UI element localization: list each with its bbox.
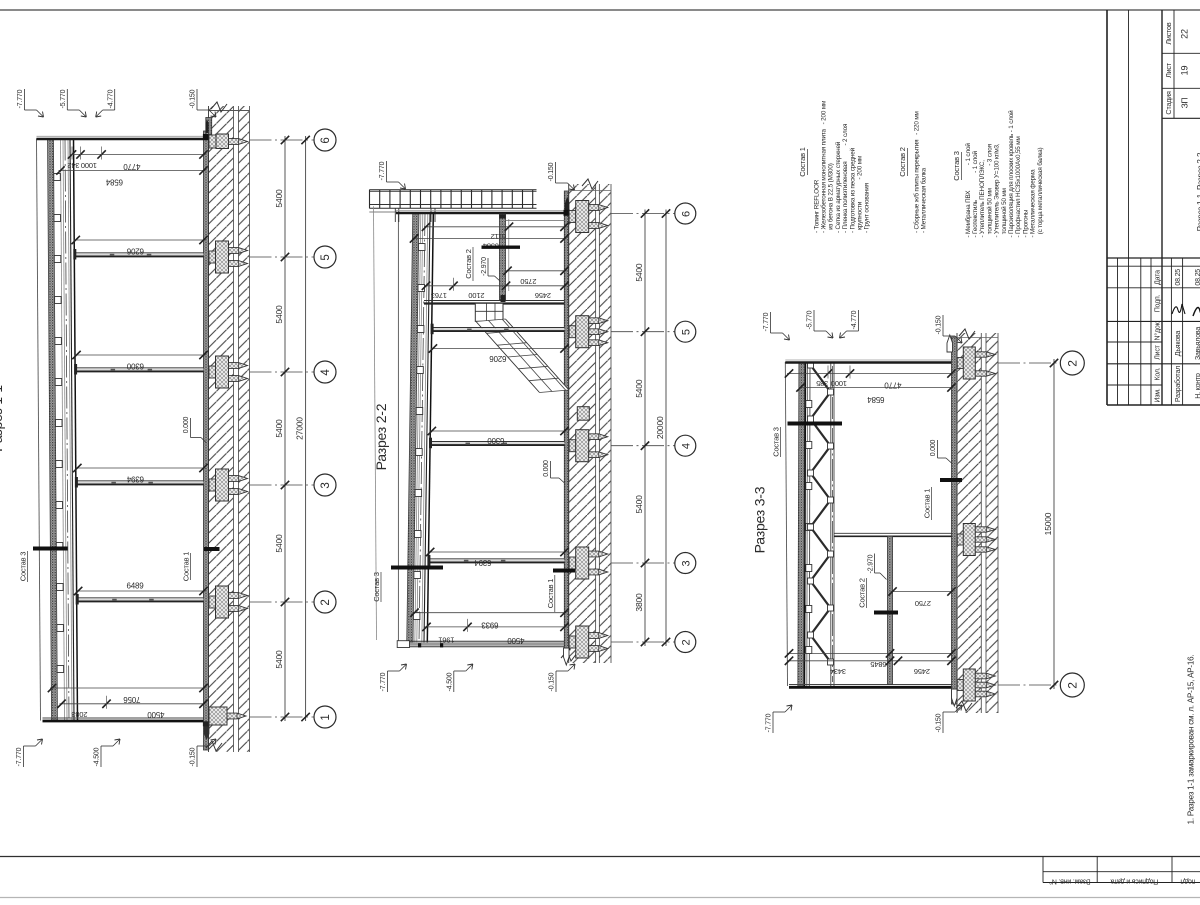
svg-text:2750: 2750 (521, 277, 537, 286)
svg-text:крупности - 200 м: крупности - 200 мм (857, 156, 864, 233)
svg-text:Разрез 3-3: Разрез 3-3 (752, 486, 768, 553)
svg-text:Взам. инв. N°: Взам. инв. N° (1049, 878, 1091, 886)
svg-text:4500: 4500 (147, 710, 165, 719)
svg-text:2750: 2750 (915, 599, 931, 608)
svg-text:-7.770: -7.770 (380, 672, 387, 691)
svg-text:подл: подл (1180, 878, 1195, 885)
svg-text:5400: 5400 (274, 419, 284, 438)
svg-text:Состав 3: Состав 3 (19, 552, 28, 582)
svg-text:Состав 1: Состав 1 (923, 489, 932, 519)
svg-text:08.25: 08.25 (1195, 269, 1200, 286)
svg-text:- Металлическая балка: - Металлическая балка (920, 167, 928, 233)
svg-text:Лист: Лист (1164, 62, 1173, 78)
svg-text:Состав 2: Состав 2 (898, 147, 907, 177)
svg-text:Состав 2: Состав 2 (464, 249, 473, 279)
svg-text:-4.770: -4.770 (851, 310, 858, 329)
svg-text:-0.150: -0.150 (936, 315, 943, 334)
svg-text:-7.770: -7.770 (763, 312, 770, 331)
svg-text:4: 4 (680, 443, 692, 449)
svg-text:0.000: 0.000 (543, 460, 550, 477)
svg-text:342: 342 (68, 161, 80, 170)
svg-text:1: 1 (320, 714, 332, 720)
svg-text:ЗП: ЗП (1179, 97, 1189, 108)
svg-text:Стадия: Стадия (1164, 91, 1173, 115)
svg-text:Состав 1: Состав 1 (798, 147, 807, 177)
svg-text:6489: 6489 (127, 581, 145, 590)
svg-text:6584: 6584 (867, 395, 885, 404)
svg-text:Дата: Дата (1154, 270, 1161, 285)
svg-text:-2.970: -2.970 (481, 257, 488, 276)
svg-text:-7.770: -7.770 (379, 161, 386, 180)
svg-text:Дьякова: Дьякова (1175, 331, 1182, 357)
svg-text:6206: 6206 (126, 246, 144, 255)
svg-text:385: 385 (816, 379, 828, 388)
svg-text:-4.770: -4.770 (107, 89, 114, 108)
svg-text:7056: 7056 (123, 695, 141, 704)
svg-text:6394: 6394 (126, 474, 144, 483)
svg-text:-0.150: -0.150 (190, 89, 197, 108)
svg-text:6933: 6933 (481, 620, 499, 629)
svg-text:-5.770: -5.770 (807, 310, 814, 329)
svg-text:5400: 5400 (634, 495, 644, 514)
svg-text:Н. контр: Н. контр (1195, 373, 1200, 399)
svg-text:3: 3 (320, 482, 332, 488)
svg-text:- Пленка полиэтиленовая: - Пленка полиэтиленовая - 2 слоя (842, 124, 849, 233)
svg-text:20000: 20000 (655, 416, 665, 439)
svg-text:4: 4 (320, 369, 332, 376)
svg-text:- Сборные ж/б плиты перекрытия: - Сборные ж/б плиты перекрытия - 220 мм (912, 111, 920, 233)
svg-text:1000: 1000 (831, 379, 847, 388)
svg-text:-0.150: -0.150 (549, 672, 556, 691)
svg-text:Подп.: Подп. (1154, 294, 1161, 312)
svg-text:- Железобетонная монолитная пл: - Железобетонная монолитная плита - 200 … (820, 101, 828, 233)
svg-text:-2.970: -2.970 (868, 554, 875, 573)
svg-text:- Грунт основания: - Грунт основания (864, 183, 871, 233)
svg-text:1. Разрез 1-1 замаркирован см.: 1. Разрез 1-1 замаркирован см. л. АР-15,… (1187, 655, 1196, 825)
svg-text:-4.500: -4.500 (94, 747, 101, 766)
svg-text:4770: 4770 (884, 380, 902, 389)
svg-text:1961: 1961 (439, 636, 455, 645)
svg-text:08.25: 08.25 (1175, 269, 1182, 286)
svg-text:-0.150: -0.150 (190, 747, 197, 766)
svg-text:- Сетка из арматурных стержней: - Сетка из арматурных стержней (834, 141, 842, 233)
svg-text:(с торца металлическая балка): (с торца металлическая балка) (1036, 148, 1044, 238)
svg-text:- Топинг REFLOOR: - Топинг REFLOOR (813, 179, 820, 233)
svg-text:2: 2 (680, 639, 692, 645)
svg-text:Состав 3: Состав 3 (772, 427, 781, 457)
svg-text:Разрез 1-1, Разрез 2-2: Разрез 1-1, Разрез 2-2 (1196, 152, 1200, 231)
svg-text:6300: 6300 (126, 361, 144, 370)
svg-text:0.000: 0.000 (930, 439, 937, 456)
svg-text:Разрез 2-2: Разрез 2-2 (373, 403, 389, 470)
svg-text:Лист: Лист (1154, 344, 1161, 359)
svg-text:0.000: 0.000 (183, 416, 190, 433)
svg-text:4770: 4770 (123, 162, 141, 171)
svg-text:Подпись и дата: Подпись и дата (1110, 878, 1158, 885)
svg-text:2: 2 (320, 599, 332, 605)
svg-text:Состав 2: Состав 2 (858, 578, 867, 608)
svg-text:5400: 5400 (634, 379, 644, 398)
svg-text:-7.770: -7.770 (766, 713, 773, 732)
svg-text:6394: 6394 (474, 558, 492, 567)
svg-text:- Профнастил НС35х1000Ах0,55 м: - Профнастил НС35х1000Ах0,55 мм (1015, 136, 1022, 237)
svg-text:-7.770: -7.770 (16, 747, 23, 766)
svg-text:-7.770: -7.770 (17, 89, 24, 108)
svg-text:1763: 1763 (431, 291, 447, 300)
svg-text:5: 5 (320, 254, 332, 260)
svg-text:6845: 6845 (871, 660, 887, 669)
svg-text:- Мембрана ПВХ: - Мембрана ПВХ - 1 слой (964, 143, 972, 238)
svg-text:Состав 1: Состав 1 (546, 579, 555, 609)
svg-text:- Металлическая ферма: - Металлическая ферма (1030, 169, 1037, 238)
svg-text:6: 6 (320, 137, 332, 143)
svg-text:5400: 5400 (274, 189, 284, 208)
svg-text:Состав 3: Состав 3 (372, 572, 381, 602)
svg-text:Разрез 1-1: Разрез 1-1 (0, 385, 5, 452)
svg-text:3: 3 (680, 560, 692, 566)
svg-text:N°док: N°док (1153, 321, 1161, 340)
svg-text:4500: 4500 (507, 636, 525, 645)
svg-text:3434: 3434 (830, 667, 846, 676)
svg-text:толщиной 50 мм: толщиной 50 мм (1000, 188, 1008, 237)
svg-text:15000: 15000 (1043, 512, 1053, 535)
svg-text:2100: 2100 (469, 291, 485, 300)
svg-text:-5.770: -5.770 (60, 89, 67, 108)
svg-text:2456: 2456 (914, 667, 930, 676)
svg-text:Листов: Листов (1164, 22, 1173, 45)
svg-text:2: 2 (1066, 360, 1080, 367)
svg-text:6112: 6112 (491, 232, 506, 241)
svg-text:5: 5 (680, 329, 692, 335)
svg-text:Состав 3: Состав 3 (952, 151, 961, 181)
svg-text:- Пароизоляция для плоских кро: - Пароизоляция для плоских кровель - 1 с… (1007, 110, 1015, 238)
svg-text:- Геотекстиль: - Геотекстиль - 1 слой (971, 150, 979, 237)
svg-text:27000: 27000 (295, 417, 305, 440)
svg-text:2083: 2083 (72, 710, 88, 719)
svg-text:2: 2 (1066, 682, 1080, 689)
svg-text:5400: 5400 (274, 534, 284, 553)
svg-text:1000: 1000 (81, 161, 97, 170)
svg-text:5400: 5400 (274, 305, 284, 324)
svg-text:6: 6 (680, 211, 692, 217)
svg-text:5400: 5400 (634, 263, 644, 282)
svg-text:Изм.: Изм. (1154, 388, 1161, 402)
svg-text:6300: 6300 (487, 436, 505, 445)
svg-text:Завьялова: Завьялова (1195, 327, 1200, 360)
svg-text:- Утеплитель ПЕНОПЛЭКС,: - Утеплитель ПЕНОПЛЭКС, (979, 160, 986, 238)
svg-text:- Прогоны: - Прогоны (1022, 209, 1029, 237)
svg-text:19: 19 (1180, 66, 1190, 76)
svg-text:- Подготовка из песка средней: - Подготовка из песка средней (848, 147, 856, 233)
svg-text:22: 22 (1180, 29, 1190, 39)
svg-text:толщиной 50 мм -: толщиной 50 мм - 3 слоя (985, 144, 993, 237)
svg-text:-0.150: -0.150 (548, 162, 555, 181)
svg-text:из бетона В 22,5 (М300): из бетона В 22,5 (М300) (827, 163, 835, 233)
svg-text:5400: 5400 (274, 650, 284, 669)
svg-text:Состав 1: Состав 1 (182, 552, 191, 582)
svg-text:6584: 6584 (105, 177, 123, 186)
svg-text:- Утеплитель Эковер У=100 кг/м: - Утеплитель Эковер У=100 кг/м3, (994, 143, 1001, 237)
svg-text:6206: 6206 (489, 354, 507, 363)
svg-text:3800: 3800 (634, 593, 644, 612)
svg-text:-0.150: -0.150 (936, 713, 943, 732)
svg-text:2456: 2456 (535, 291, 551, 300)
svg-text:Разработал: Разработал (1174, 366, 1182, 402)
svg-text:Кол.: Кол. (1154, 367, 1161, 380)
svg-text:-4.500: -4.500 (447, 672, 454, 691)
